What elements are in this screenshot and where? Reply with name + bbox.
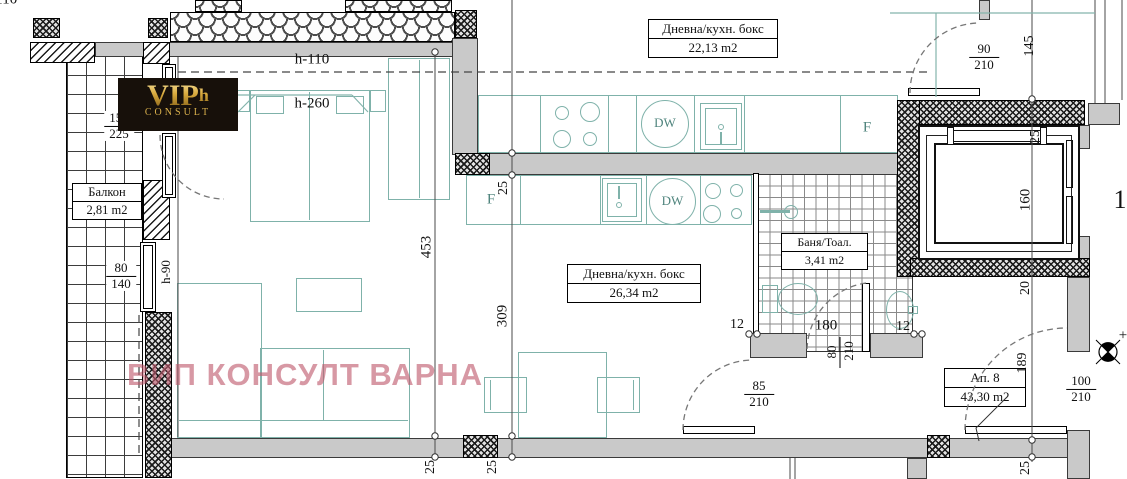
dim-210: 210 — [841, 341, 857, 361]
dim-309: 309 — [495, 305, 512, 328]
fridge-label: F — [487, 192, 495, 209]
plan-linework — [0, 0, 1127, 479]
dim-door-85-210: 85210 — [744, 379, 774, 409]
dim-25: 25 — [485, 460, 501, 474]
dim-25: 25 — [1028, 130, 1044, 144]
north-plus: + — [1119, 328, 1127, 345]
height-label-h110: h-110 — [0, 0, 17, 9]
door-arc-top-right — [910, 23, 978, 93]
floor-plan-canvas: DW DW — [0, 0, 1127, 479]
door-arc-right — [965, 328, 1067, 430]
dim-25: 25 — [496, 181, 512, 195]
height-label-h90: h-90 — [158, 260, 174, 284]
dim-145: 145 — [1022, 36, 1038, 57]
dim-window-80-140: 80140 — [106, 261, 136, 291]
dim-453: 453 — [419, 236, 436, 259]
door-arc-balcony — [160, 135, 224, 199]
height-label-h110: h-110 — [295, 52, 329, 69]
dim-80: 80 — [824, 346, 840, 359]
dim-180: 180 — [815, 318, 838, 335]
north-arrow — [1096, 340, 1120, 364]
stub-lines-bottom — [790, 458, 795, 479]
dim-189: 189 — [1015, 353, 1031, 374]
dim-25: 25 — [1018, 461, 1034, 475]
dim-door-100-210: 100210 — [1066, 374, 1096, 404]
height-label-h260: h-260 — [295, 96, 330, 113]
dim-door-90-210: 90210 — [969, 42, 999, 72]
dim-160: 160 — [1018, 189, 1035, 212]
wall-line-right-top — [1095, 0, 1122, 103]
edge-number: 1 — [1114, 185, 1127, 215]
dim-12: 12 — [896, 319, 910, 335]
dim-20: 20 — [1018, 281, 1034, 295]
door-arc-entry — [683, 360, 753, 430]
dim-25: 25 — [423, 460, 439, 474]
vip-consult-logo: VIPh CONSULT — [118, 78, 238, 131]
dim-12: 12 — [730, 317, 744, 333]
fridge-label: F — [863, 120, 871, 137]
logo-sub: CONSULT — [118, 107, 238, 118]
apartment-label-leader — [976, 396, 1008, 441]
watermark: ВИП КОНСУЛТ ВАРНА — [127, 357, 483, 393]
